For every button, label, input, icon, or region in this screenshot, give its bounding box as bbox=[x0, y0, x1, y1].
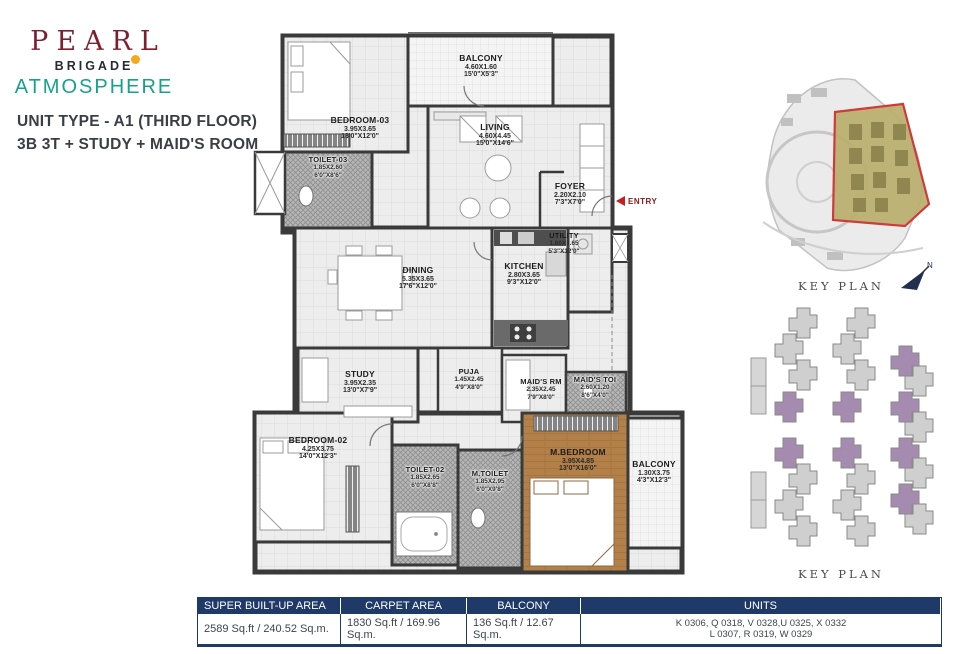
wardrobe-icon bbox=[346, 466, 359, 532]
room-label-bedroom-03: BEDROOM-03 3.95X3.65 13'0"X12'0" bbox=[331, 116, 390, 141]
area-table: SUPER BUILT-UP AREA CARPET AREA BALCONY … bbox=[197, 597, 942, 647]
header-balcony: BALCONY bbox=[467, 598, 581, 614]
wc-icon bbox=[299, 186, 313, 206]
master-bed-icon bbox=[530, 478, 614, 566]
study-desk-icon bbox=[344, 406, 412, 417]
brand-logo: PEARL BRIGADE ATMOSPHERE bbox=[14, 26, 174, 99]
key-plan-blocks: KEY PLAN bbox=[733, 300, 955, 592]
coffee-table-icon bbox=[485, 155, 511, 181]
unit-type-line1: UNIT TYPE - A1 (THIRD FLOOR) bbox=[17, 110, 258, 133]
builder-name: BRIGADE bbox=[55, 59, 134, 73]
wc-icon bbox=[471, 508, 485, 528]
room-label-study: STUDY 3.95X2.35 13'0"X7'9" bbox=[343, 370, 377, 395]
room-label-maids-toi: MAID'S TOI 2.60X1.20 8'6"X4'0" bbox=[574, 376, 616, 399]
key-plan-site: KEY PLAN N bbox=[733, 52, 955, 300]
room-label-living: LIVING 4.60X4.45 15'0"X14'6" bbox=[476, 123, 514, 148]
room-label-m-bedroom: M.BEDROOM 3.95X4.85 13'0"X16'0" bbox=[550, 448, 606, 473]
room-label-balcony-right: BALCONY 1.30X3.75 4'3"X12'3" bbox=[632, 460, 675, 485]
value-carpet-area: 1830 Sq.ft / 169.96 Sq.m. bbox=[341, 614, 467, 644]
entry-label: ENTRY bbox=[628, 197, 657, 206]
header-carpet-area: CARPET AREA bbox=[341, 598, 467, 614]
value-balcony: 136 Sq.ft / 12.67 Sq.m. bbox=[467, 614, 581, 644]
header-units: UNITS bbox=[581, 598, 941, 614]
north-arrow-icon: N bbox=[901, 261, 933, 290]
room-label-foyer: FOYER 2.20X2.10 7'3"X7'0" bbox=[554, 182, 586, 207]
entry-arrow-icon bbox=[616, 196, 625, 206]
project-name: PEARL bbox=[14, 26, 174, 57]
room-label-dining: DINING 5.35X3.65 17'6"X12'0" bbox=[399, 266, 437, 291]
floor-plan-sheet: PEARL BRIGADE ATMOSPHERE UNIT TYPE - A1 … bbox=[0, 0, 960, 654]
units-line1: K 0306, Q 0318, V 0328,U 0325, X 0332 bbox=[676, 618, 847, 629]
room-label-maids-rm: MAID'S RM 2.35X2.45 7'9"X8'0" bbox=[520, 378, 562, 401]
units-line2: L 0307, R 0319, W 0329 bbox=[710, 629, 813, 640]
unit-type-line2: 3B 3T + STUDY + MAID'S ROOM bbox=[17, 133, 258, 156]
floor-plan: BALCONY 4.60X1.60 15'0"X5'3" BEDROOM-03 … bbox=[248, 20, 708, 595]
svg-text:N: N bbox=[927, 261, 933, 270]
unit-type-title: UNIT TYPE - A1 (THIRD FLOOR) 3B 3T + STU… bbox=[17, 110, 258, 157]
room-label-kitchen: KITCHEN 2.80X3.65 9'3"X12'0" bbox=[504, 262, 543, 287]
room-label-balcony-top: BALCONY 4.60X1.60 15'0"X5'3" bbox=[459, 54, 502, 79]
room-label-bedroom-02: BEDROOM-02 4.25X3.75 14'0"X12'3" bbox=[289, 436, 348, 461]
blocks-plan-drawing: KEY PLAN bbox=[733, 300, 955, 592]
site-plan-drawing: KEY PLAN N bbox=[733, 52, 955, 300]
room-label-m-toilet: M.TOILET 1.85X2.95 6'0"X9'8" bbox=[472, 470, 508, 493]
bed-icon bbox=[288, 42, 350, 120]
key-plan-site-label: KEY PLAN bbox=[798, 279, 884, 293]
wardrobe-icon bbox=[534, 416, 618, 431]
orange-dot-icon bbox=[131, 55, 140, 64]
value-super-built-up: 2589 Sq.ft / 240.52 Sq.m. bbox=[198, 614, 341, 644]
key-plan-blocks-label: KEY PLAN bbox=[798, 567, 884, 581]
header-super-built-up: SUPER BUILT-UP AREA bbox=[198, 598, 341, 614]
development-name: ATMOSPHERE bbox=[14, 76, 174, 99]
bathtub-icon bbox=[396, 512, 452, 556]
value-units: K 0306, Q 0318, V 0328,U 0325, X 0332 L … bbox=[581, 614, 941, 644]
highlighted-block bbox=[833, 392, 861, 422]
room-label-puja: PUJA 1.45X2.45 4'9"X8'0" bbox=[454, 368, 483, 391]
floor-plan-drawing bbox=[248, 20, 708, 595]
entry-marker: ENTRY bbox=[616, 196, 657, 206]
study-sofa-icon bbox=[302, 358, 328, 402]
highlighted-block bbox=[775, 392, 803, 422]
room-label-toilet-02: TOILET-02 1.85X2.65 6'0"X8'8" bbox=[406, 466, 445, 489]
site-highlight bbox=[833, 104, 929, 226]
room-label-utility: UTILITY 1.60X3.65 5'3"X12'0" bbox=[548, 232, 579, 255]
room-label-toilet-03: TOILET-03 1.85X2.60 6'0"X8'6" bbox=[309, 156, 348, 179]
